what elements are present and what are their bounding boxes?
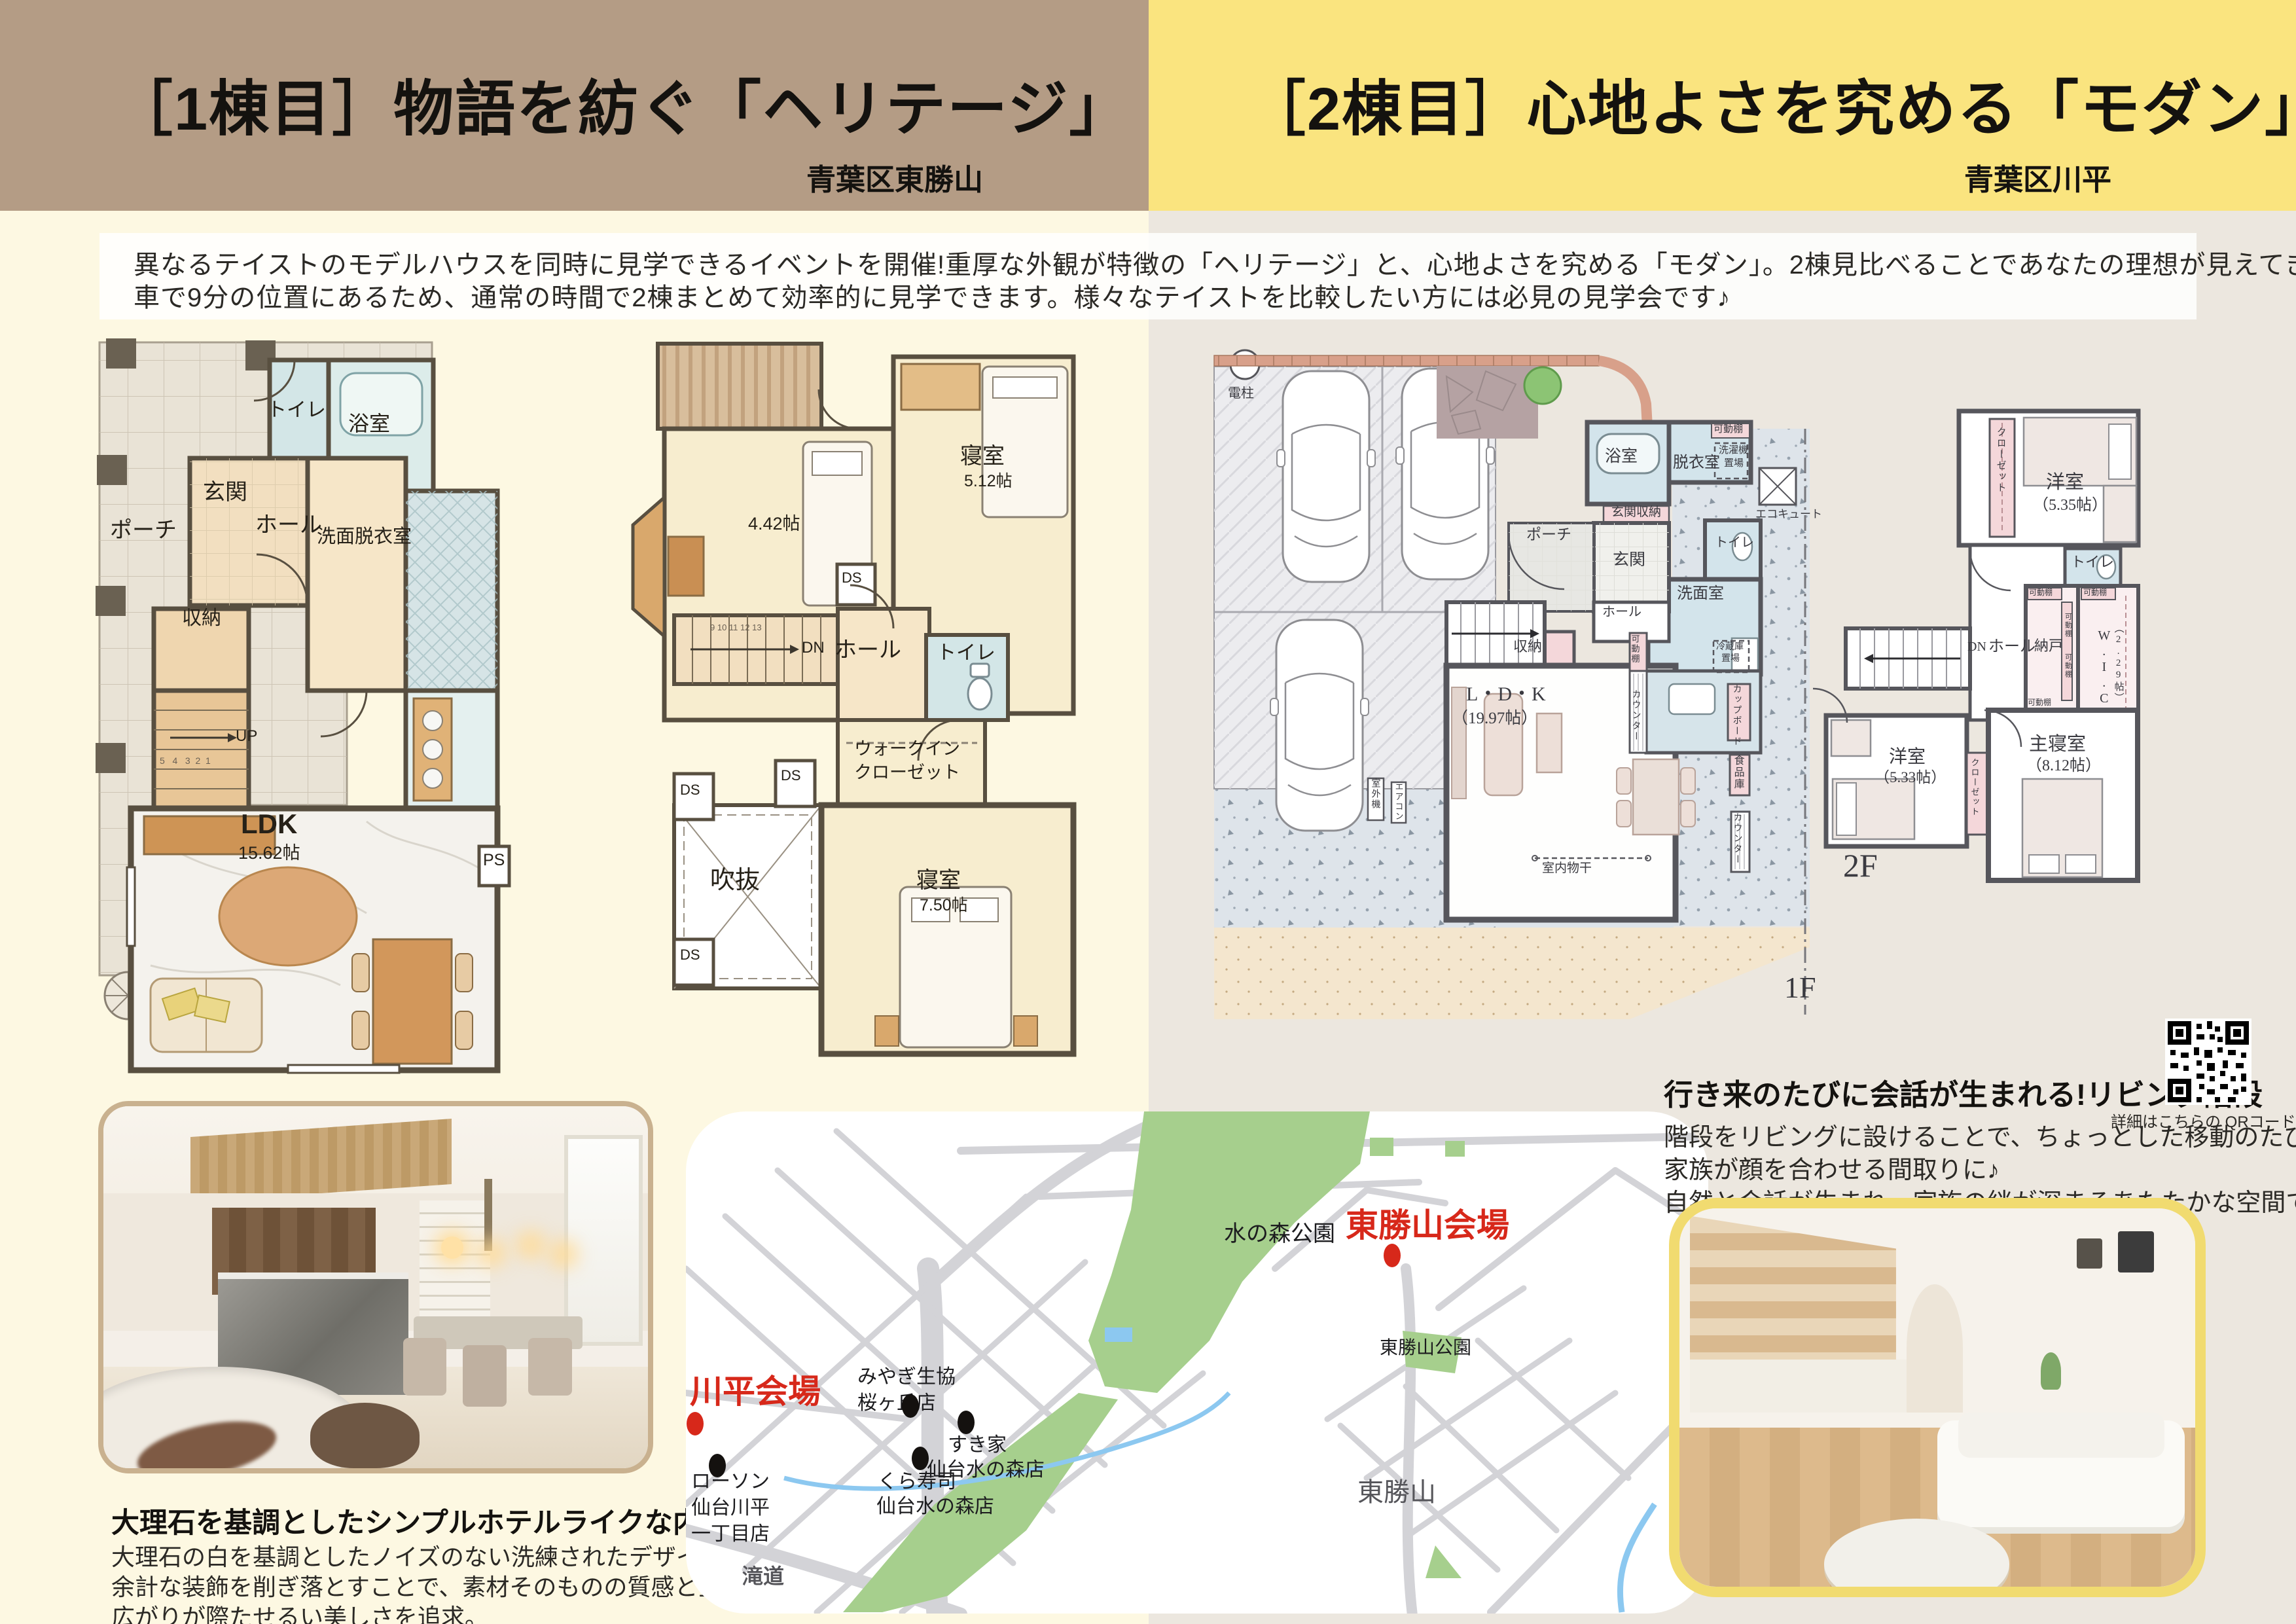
room-or-place-label: 可動棚 xyxy=(2028,698,2051,706)
room-or-place-label: 水の森公園 xyxy=(1224,1223,1335,1246)
room-or-place-label: 可動棚 xyxy=(1713,425,1743,435)
qr-code xyxy=(2165,1019,2251,1105)
house2-title: ［2棟目］心地よさを究める「モダン」 xyxy=(1246,60,2296,147)
room-or-place-label: クローゼット xyxy=(854,763,960,782)
room-or-place-label: ホール xyxy=(834,639,901,662)
photo-shelf xyxy=(420,1200,490,1331)
room-or-place-label: カップボード xyxy=(1731,684,1741,747)
room-or-place-label: 東勝山 xyxy=(1357,1479,1436,1507)
feature-left-body2: 余計な装飾を削ぎ落とすことで、素材そのものの質感と空間の xyxy=(111,1568,768,1602)
floorplan-house2-1f: 電柱浴室脱衣室可動棚洗濯機置場エコキュート玄関収納ポーチ玄関トイレ洗面室ホール収… xyxy=(1211,331,1813,1024)
floorplan-house1-1f: トイレ浴室玄関ホール洗面脱衣室ポーチ収納UP5 4 3 2 1LDK15.62帖… xyxy=(92,324,589,1090)
room-or-place-label: クローゼット xyxy=(1970,758,1979,817)
interior-photo-house2 xyxy=(1669,1198,2206,1597)
room-or-place-label: DS xyxy=(680,948,700,963)
map-marker-dot xyxy=(958,1411,975,1434)
room-or-place-label: ホール xyxy=(255,514,322,537)
room-or-place-label: 洗濯機 xyxy=(1719,446,1748,456)
room-or-place-label: 浴室 xyxy=(348,413,390,435)
room-or-place-label: トイレ xyxy=(2071,555,2114,570)
room-or-place-label: 7.50帖 xyxy=(920,897,968,914)
header-house2: ［2棟目］心地よさを究める「モダン」 青葉区川平 xyxy=(1149,0,2296,211)
photo-sofa-back xyxy=(1958,1413,2164,1458)
room-or-place-label: 冷蔵庫 xyxy=(1716,643,1744,653)
room-or-place-label: 電柱 xyxy=(1228,387,1254,401)
map-marker-dot xyxy=(902,1394,919,1418)
room-or-place-label: W.I.C xyxy=(2097,628,2111,707)
room-or-place-label: 納戸 xyxy=(2034,639,2063,654)
room-or-place-label: 可動棚 xyxy=(1630,634,1640,664)
qr-caption: 詳細はこちらの QRコードから xyxy=(2111,1109,2296,1132)
photo-chair xyxy=(403,1338,447,1396)
room-or-place-label: くら寿司 xyxy=(878,1471,956,1492)
room-or-place-label: 主寝室 xyxy=(2029,734,2086,754)
room-or-place-label: ポーチ xyxy=(110,519,177,542)
room-or-place-label: カウンター xyxy=(1630,689,1640,742)
feature-left-body3: 広がりが際たせるい美しさを追求。 xyxy=(111,1598,488,1624)
feature-left-body1: 大理石の白を基調としたノイズのない洗練されたデザイン。 xyxy=(111,1538,745,1572)
photo-pendant-lights xyxy=(441,1236,463,1259)
room-or-place-label: みやぎ生協 xyxy=(857,1367,956,1387)
room-or-place-label: 寝室 xyxy=(960,445,1005,468)
room-or-place-label: ローソン xyxy=(691,1471,770,1492)
floorplan-house2-2f-labels: クローゼット洋室（5.35帖）トイレ可動棚可動棚納戸可動棚可動棚W.I.C（2.… xyxy=(1813,386,2147,916)
room-or-place-label: 仙台川平 xyxy=(691,1498,770,1518)
room-or-place-label: UP xyxy=(236,729,257,745)
room-or-place-label: DS xyxy=(680,783,700,798)
room-or-place-label: エコキュート xyxy=(1755,509,1822,520)
room-or-place-label: 5.12帖 xyxy=(964,473,1013,490)
photo-pendant-stem xyxy=(484,1179,492,1251)
room-or-place-label: カウンター xyxy=(1732,812,1742,865)
room-or-place-label: 寝室 xyxy=(916,869,961,892)
room-or-place-label: 滝道 xyxy=(742,1566,784,1587)
photo-window xyxy=(564,1135,643,1346)
intro-box: 異なるテイストのモデルハウスを同時に見学できるイベントを開催!重厚な外観が特徴の… xyxy=(99,233,2197,319)
room-or-place-label: クローゼット xyxy=(1995,427,2005,494)
room-or-place-label: 可動棚 xyxy=(2083,588,2107,596)
floorplan-house2-2f: クローゼット洋室（5.35帖）トイレ可動棚可動棚納戸可動棚可動棚W.I.C（2.… xyxy=(1813,386,2147,916)
photo-plant xyxy=(2041,1352,2062,1390)
room-or-place-label: すき家 xyxy=(948,1435,1007,1455)
room-or-place-label: ウォークイン xyxy=(854,740,960,758)
room-or-place-label: トイレ xyxy=(267,400,326,420)
room-or-place-label: （19.97帖） xyxy=(1452,710,1537,727)
floorplan-house1-2f: 寝室5.12帖4.42帖DS9 10 11 12 13DNホールトイレウォークイ… xyxy=(619,321,1077,1090)
house2-area: 青葉区川平 xyxy=(1964,156,2111,198)
floorplan-house2-1f-labels: 電柱浴室脱衣室可動棚洗濯機置場エコキュート玄関収納ポーチ玄関トイレ洗面室ホール収… xyxy=(1211,331,1813,1024)
feature-right-body2: 家族が顔を合わせる間取りに♪ xyxy=(1664,1149,2000,1185)
room-or-place-label: 洋室 xyxy=(2046,473,2084,492)
room-or-place-label: （8.12帖） xyxy=(2026,758,2101,774)
room-or-place-label: 川平会場 xyxy=(690,1375,821,1409)
room-or-place-label: （5.33帖） xyxy=(1874,770,1946,785)
room-or-place-label: 脱衣室 xyxy=(1673,455,1720,471)
room-or-place-label: 収納 xyxy=(182,608,221,628)
room-or-place-label: 玄関 xyxy=(203,481,247,504)
room-or-place-label: 置場 xyxy=(1724,459,1744,469)
house1-title: ［1棟目］物語を紡ぐ「ヘリテージ」 xyxy=(113,60,1130,147)
room-or-place-label: ポーチ xyxy=(1526,527,1571,543)
room-or-place-label: 浴室 xyxy=(1605,448,1638,465)
room-or-place-label: （2.29帖） xyxy=(2113,623,2123,704)
photo-wall-frame xyxy=(2118,1231,2154,1273)
photo-ottoman xyxy=(310,1403,419,1468)
house1-area: 青葉区東勝山 xyxy=(806,156,983,198)
room-or-place-label: （5.35帖） xyxy=(2033,497,2108,514)
room-or-place-label: 桜ヶ丘店 xyxy=(857,1393,936,1413)
room-or-place-label: トイレ xyxy=(1715,536,1754,550)
photo-wall-frame xyxy=(2077,1238,2102,1269)
room-or-place-label: 5 4 3 2 1 xyxy=(160,756,211,766)
photo-chair xyxy=(528,1338,572,1396)
room-or-place-label: 玄関 xyxy=(1613,552,1645,569)
map-marker-dot xyxy=(709,1454,726,1477)
room-or-place-label: 収納 xyxy=(1513,640,1542,655)
room-or-place-label: 東勝山会場 xyxy=(1346,1208,1509,1242)
room-or-place-label: 9 10 11 12 13 xyxy=(710,623,762,632)
room-or-place-label: PS xyxy=(483,852,505,869)
room-or-place-label: エアコン xyxy=(1394,782,1403,821)
room-or-place-label: DN xyxy=(802,640,825,657)
room-or-place-label: 2F xyxy=(1843,848,1878,882)
floorplan-house1-1f-labels: トイレ浴室玄関ホール洗面脱衣室ポーチ収納UP5 4 3 2 1LDK15.62帖… xyxy=(92,324,589,1090)
room-or-place-label: 食品庫 xyxy=(1732,755,1743,790)
room-or-place-label: 可動棚 xyxy=(2064,653,2071,679)
access-map: 水の森公園東勝山会場東勝山公園東勝山川平会場みやぎ生協桜ヶ丘店すき家仙台水の森店… xyxy=(686,1111,1708,1614)
photo-chair xyxy=(463,1345,507,1407)
intro-line2: 車で9分の位置にあるため、通常の時間で2棟まとめて効率的に見学できます。様々なテ… xyxy=(134,276,1731,314)
header-house1: ［1棟目］物語を紡ぐ「ヘリテージ」 青葉区東勝山 xyxy=(0,0,1149,211)
room-or-place-label: 4.42帖 xyxy=(748,514,800,533)
room-or-place-label: 可動棚 xyxy=(2064,613,2071,638)
room-or-place-label: 洋室 xyxy=(1889,748,1926,767)
room-or-place-label: 室外機 xyxy=(1370,778,1380,810)
room-or-place-label: DS xyxy=(842,571,862,586)
room-or-place-label: トイレ xyxy=(937,643,996,663)
room-or-place-label: 東勝山公園 xyxy=(1380,1338,1471,1357)
room-or-place-label: 玄関収納 xyxy=(1611,506,1661,519)
room-or-place-label: L・D・K xyxy=(1466,684,1546,704)
room-or-place-label: 洗面脱衣室 xyxy=(317,527,412,547)
feature-left-title: 大理石を基調としたシンプルホテルライクな内観 xyxy=(111,1500,729,1541)
room-or-place-label: ホール xyxy=(1988,639,2036,655)
room-or-place-label: 15.62帖 xyxy=(238,844,300,862)
qr-code-pattern xyxy=(2165,1019,2251,1105)
room-or-place-label: DS xyxy=(781,768,801,784)
photo-stair-stringer xyxy=(1690,1360,1917,1413)
room-or-place-label: ホール xyxy=(1602,605,1641,619)
flyer-page: ［1棟目］物語を紡ぐ「ヘリテージ」 青葉区東勝山 ［2棟目］心地よさを究める「モ… xyxy=(0,0,2296,1624)
room-or-place-label: LDK xyxy=(241,810,297,839)
room-or-place-label: 置場 xyxy=(1721,655,1740,664)
map-marker-dot xyxy=(687,1412,704,1435)
room-or-place-label: 室内物干 xyxy=(1542,862,1592,875)
room-or-place-label: 一丁目店 xyxy=(691,1524,770,1544)
map-marker-dot xyxy=(912,1447,929,1470)
room-or-place-label: 洗面室 xyxy=(1677,586,1724,602)
map-labels: 水の森公園東勝山会場東勝山公園東勝山川平会場みやぎ生協桜ヶ丘店すき家仙台水の森店… xyxy=(686,1111,1708,1614)
room-or-place-label: DN xyxy=(1967,640,1986,654)
interior-photo-house1 xyxy=(98,1101,653,1473)
room-or-place-label: 仙台水の森店 xyxy=(876,1496,994,1517)
room-or-place-label: 1F xyxy=(1784,972,1816,1003)
room-or-place-label: 吹抜 xyxy=(710,868,760,894)
map-marker-dot xyxy=(1384,1244,1401,1267)
floorplan-house1-2f-labels: 寝室5.12帖4.42帖DS9 10 11 12 13DNホールトイレウォークイ… xyxy=(619,321,1077,1090)
room-or-place-label: 可動棚 xyxy=(2029,588,2053,596)
photo-arch-niche xyxy=(1907,1284,1964,1413)
